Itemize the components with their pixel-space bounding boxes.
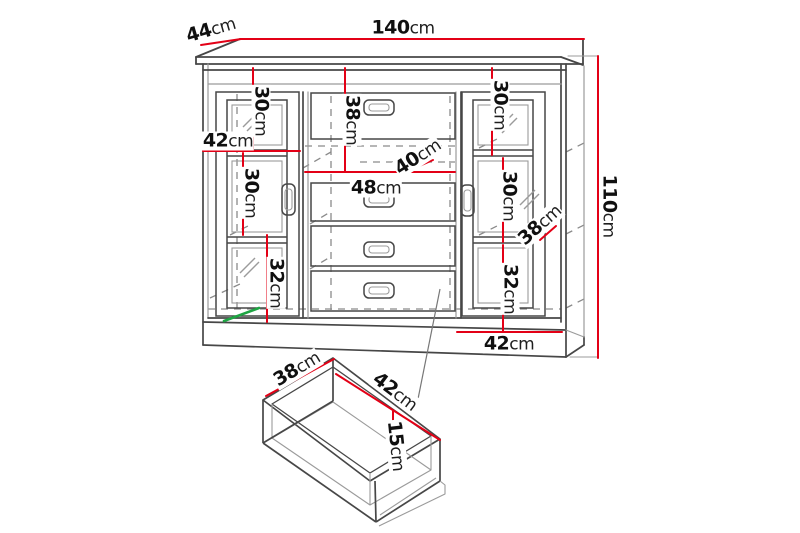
drawer-stack bbox=[311, 93, 455, 311]
dim-label-drawer-detail-depth: 15cm bbox=[384, 419, 408, 473]
dim-label-right-top-shelf: 30cm bbox=[491, 79, 510, 131]
cabinet-top bbox=[196, 39, 583, 65]
dim-label-drawer-width: 48cm bbox=[350, 179, 402, 198]
dim-label-middle-top-height: 38cm bbox=[343, 94, 362, 146]
dim-label-right-middle-shelf: 30cm bbox=[500, 170, 519, 222]
dim-label-left-top-shelf: 30cm bbox=[252, 85, 271, 137]
dim-label-right-width: 42cm bbox=[483, 335, 535, 354]
dim-label-overall-height: 110cm bbox=[600, 173, 619, 238]
green-shelf-line bbox=[224, 308, 259, 321]
drawer-handle-icon bbox=[364, 100, 394, 298]
leader-line bbox=[418, 289, 440, 399]
dimension-diagram: 44cm 140cm 110cm 30cm 42cm 30cm 32cm 38c… bbox=[0, 0, 800, 533]
dim-label-left-bottom-shelf: 32cm bbox=[267, 257, 286, 309]
dim-label-right-bottom-shelf: 32cm bbox=[501, 263, 520, 315]
dim-label-left-width: 42cm bbox=[202, 132, 254, 151]
right-door-handle-icon bbox=[461, 185, 474, 216]
left-door-handle-icon bbox=[282, 184, 295, 215]
dim-label-left-middle-shelf: 30cm bbox=[242, 167, 261, 219]
dim-label-overall-width: 140cm bbox=[370, 19, 435, 38]
